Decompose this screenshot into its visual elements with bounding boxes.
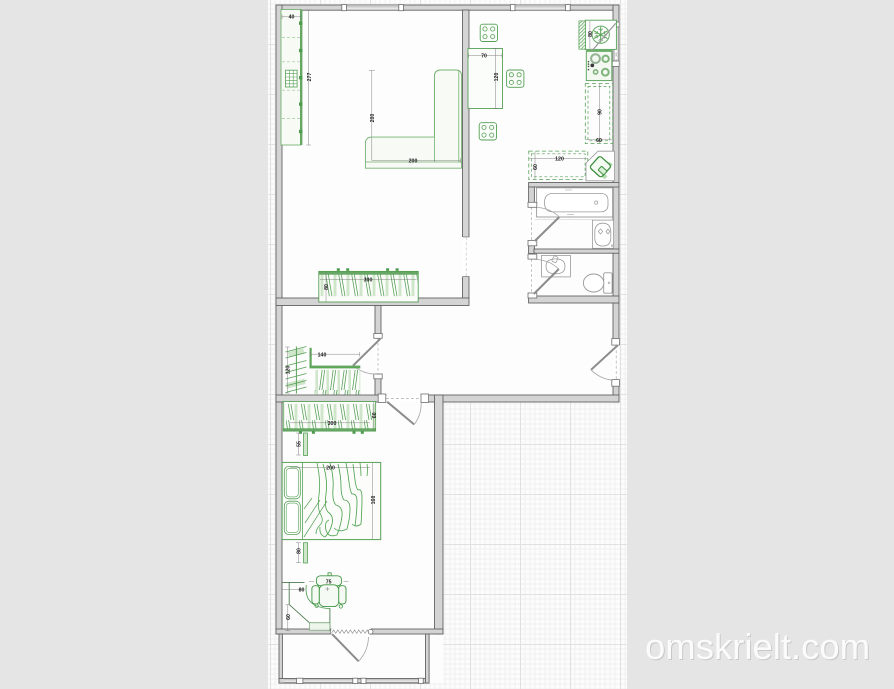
svg-text:90: 90 (598, 109, 604, 115)
svg-text:80: 80 (297, 548, 303, 554)
svg-text:70: 70 (481, 54, 487, 60)
svg-text:75: 75 (326, 579, 332, 585)
svg-text:60: 60 (596, 138, 602, 144)
svg-text:40: 40 (289, 15, 295, 21)
svg-text:160: 160 (371, 496, 377, 505)
svg-text:120: 120 (494, 73, 500, 82)
svg-text:80: 80 (324, 284, 330, 290)
svg-text:300: 300 (328, 421, 337, 427)
svg-text:200: 200 (409, 159, 418, 165)
svg-text:120: 120 (286, 366, 292, 375)
svg-text:200: 200 (370, 114, 376, 123)
svg-text:60: 60 (533, 164, 539, 170)
svg-text:120: 120 (555, 157, 564, 163)
svg-text:60: 60 (286, 614, 292, 620)
svg-text:140: 140 (318, 352, 327, 358)
svg-text:200: 200 (326, 466, 335, 472)
svg-text:80: 80 (588, 31, 594, 37)
svg-text:omskrielt.com: omskrielt.com (645, 626, 870, 667)
svg-text:55: 55 (297, 441, 303, 447)
svg-text:277: 277 (307, 73, 313, 82)
svg-text:300: 300 (364, 277, 373, 283)
svg-text:60: 60 (372, 412, 378, 418)
svg-text:80: 80 (299, 587, 305, 593)
